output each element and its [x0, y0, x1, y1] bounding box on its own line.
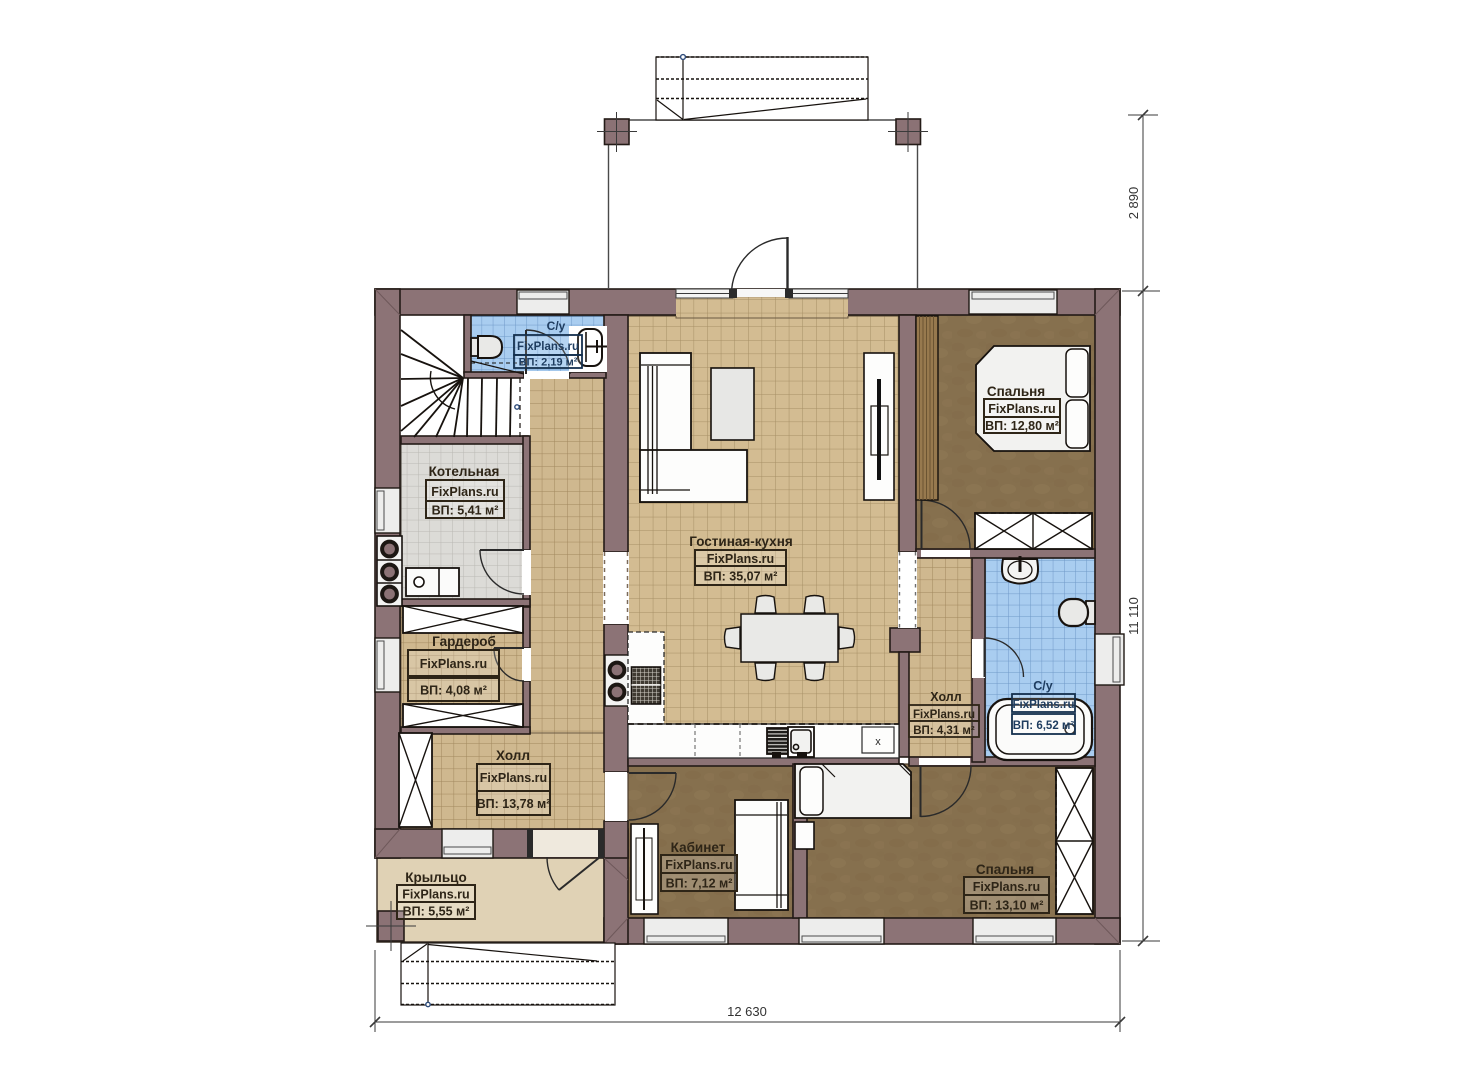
svg-text:Спальня: Спальня [976, 862, 1034, 877]
svg-text:FixPlans.ru: FixPlans.ru [707, 552, 774, 566]
svg-text:FixPlans.ru: FixPlans.ru [517, 341, 579, 353]
svg-text:FixPlans.ru: FixPlans.ru [402, 888, 469, 902]
svg-text:ВП: 35,07 м²: ВП: 35,07 м² [704, 570, 778, 584]
svg-text:ВП: 4,31 м²: ВП: 4,31 м² [913, 725, 975, 737]
svg-text:С/у: С/у [1033, 679, 1053, 693]
svg-text:ВП: 12,80 м²: ВП: 12,80 м² [985, 419, 1059, 433]
svg-text:Котельная: Котельная [429, 464, 500, 479]
svg-text:Холл: Холл [496, 748, 530, 763]
svg-text:FixPlans.ru: FixPlans.ru [431, 485, 498, 499]
svg-text:FixPlans.ru: FixPlans.ru [1013, 699, 1075, 711]
svg-text:ВП: 13,10 м²: ВП: 13,10 м² [970, 899, 1044, 913]
svg-text:Гардероб: Гардероб [432, 634, 496, 649]
svg-text:ВП: 4,08 м²: ВП: 4,08 м² [420, 684, 487, 698]
svg-text:2 890: 2 890 [1126, 187, 1141, 220]
svg-text:ВП: 2,19 м²: ВП: 2,19 м² [519, 357, 578, 369]
svg-text:Спальня: Спальня [987, 384, 1045, 399]
svg-text:ВП: 6,52 м²: ВП: 6,52 м² [1013, 720, 1075, 732]
svg-text:Холл: Холл [930, 690, 961, 704]
svg-text:FixPlans.ru: FixPlans.ru [665, 858, 732, 872]
svg-text:12 630: 12 630 [727, 1004, 767, 1019]
svg-text:ВП: 7,12 м²: ВП: 7,12 м² [666, 877, 733, 891]
svg-text:Кабинет: Кабинет [671, 840, 726, 855]
svg-text:С/у: С/у [547, 319, 566, 333]
svg-text:x: x [875, 736, 881, 748]
svg-text:Гостиная-кухня: Гостиная-кухня [689, 534, 792, 549]
svg-text:ВП: 13,78 м²: ВП: 13,78 м² [477, 797, 551, 811]
svg-text:11 110: 11 110 [1126, 597, 1141, 635]
svg-text:FixPlans.ru: FixPlans.ru [988, 402, 1055, 416]
svg-text:ВП: 5,55 м²: ВП: 5,55 м² [403, 905, 470, 919]
svg-text:ВП: 5,41 м²: ВП: 5,41 м² [432, 504, 499, 518]
svg-text:FixPlans.ru: FixPlans.ru [973, 880, 1040, 894]
svg-text:FixPlans.ru: FixPlans.ru [420, 657, 487, 671]
svg-text:FixPlans.ru: FixPlans.ru [913, 709, 975, 721]
svg-text:Крыльцо: Крыльцо [405, 870, 466, 885]
svg-text:FixPlans.ru: FixPlans.ru [480, 771, 547, 785]
